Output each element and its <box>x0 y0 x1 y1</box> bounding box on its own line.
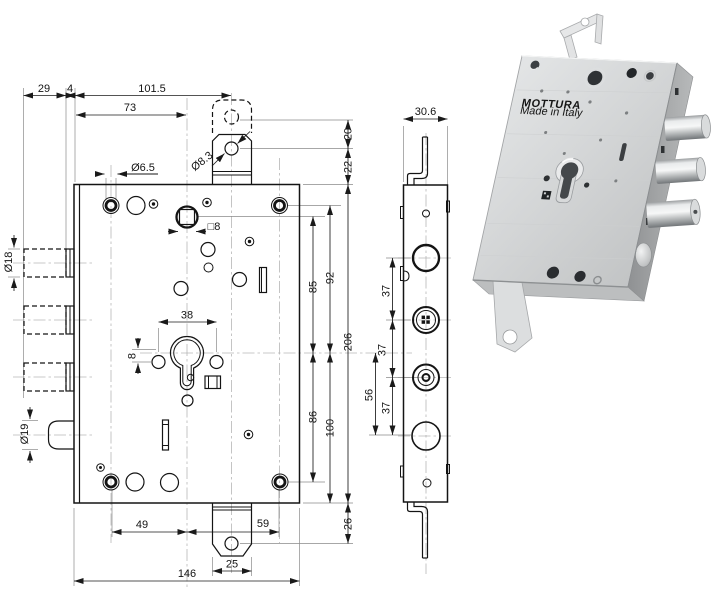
euro-cylinder-keyhole <box>152 336 223 389</box>
dim-label-206: 206 <box>343 333 355 351</box>
dim-label-59: 59 <box>257 518 269 530</box>
dim-label-85: 85 <box>308 281 320 293</box>
dimension-labels: 29 4 101.5 73 Ø6.5 Ø8.3 20 22 □8 92 85 2… <box>3 83 436 580</box>
front-holes <box>97 197 288 492</box>
dim-label-29: 29 <box>38 83 50 95</box>
dim-label-dia18: Ø18 <box>3 252 15 273</box>
dim-label-dia8-3: Ø8.3 <box>189 150 215 174</box>
dim-label-22: 22 <box>343 161 355 173</box>
dim-label-49: 49 <box>136 519 148 531</box>
dim-label-25: 25 <box>226 559 238 571</box>
technical-drawing: 29 4 101.5 73 Ø6.5 Ø8.3 20 22 □8 92 85 2… <box>0 0 716 591</box>
dim-label-56: 56 <box>364 389 376 401</box>
dim-label-sq8: □8 <box>208 221 221 233</box>
dim-label-26: 26 <box>343 518 355 530</box>
side-view <box>401 137 450 558</box>
dim-label-20: 20 <box>343 128 355 140</box>
dim-label-37-2: 37 <box>377 344 389 356</box>
dim-label-dia19: Ø19 <box>19 424 31 445</box>
dim-label-4: 4 <box>67 83 73 95</box>
dim-label-92: 92 <box>325 272 337 284</box>
dim-label-30-6: 30.6 <box>415 106 436 118</box>
product-photo: MOTTURA Made in Italy <box>473 14 711 352</box>
dim-label-38: 38 <box>181 310 193 322</box>
dim-label-dia6-5: Ø6.5 <box>131 162 155 174</box>
dim-label-86: 86 <box>308 411 320 423</box>
photo-top-tab <box>560 14 603 60</box>
dim-label-146: 146 <box>178 568 196 580</box>
lock-technical-drawing-page: 29 4 101.5 73 Ø6.5 Ø8.3 20 22 □8 92 85 2… <box>0 0 716 591</box>
dim-label-101-5: 101.5 <box>138 83 166 95</box>
dim-label-73: 73 <box>124 102 136 114</box>
dim-label-100: 100 <box>325 419 337 437</box>
construction-lines <box>13 93 452 588</box>
dim-label-37-1: 37 <box>381 285 393 297</box>
front-view <box>24 100 300 556</box>
dim-label-37-3: 37 <box>381 402 393 414</box>
dim-label-8: 8 <box>127 353 139 359</box>
